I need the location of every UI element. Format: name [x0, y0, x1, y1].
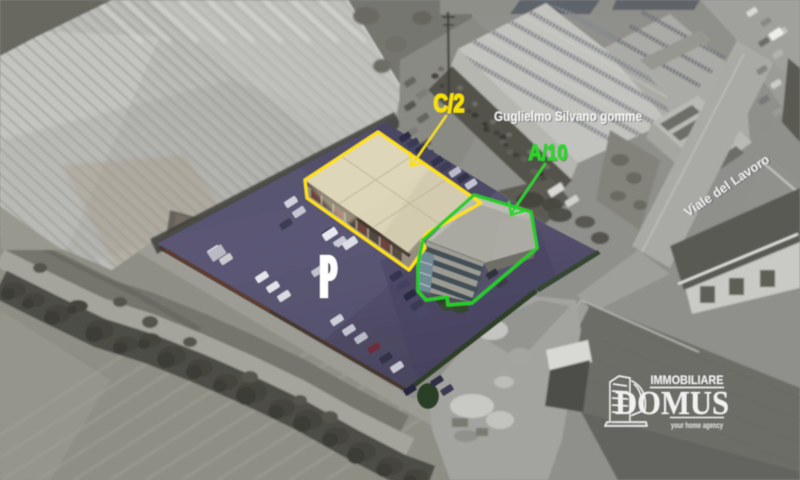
svg-text:DOMUS: DOMUS	[615, 385, 729, 422]
svg-text:C/2: C/2	[434, 90, 465, 118]
svg-text:A/10: A/10	[529, 140, 568, 165]
svg-text:your home agency: your home agency	[671, 420, 723, 430]
svg-text:Guglielmo Silvano gomme: Guglielmo Silvano gomme	[494, 109, 642, 124]
